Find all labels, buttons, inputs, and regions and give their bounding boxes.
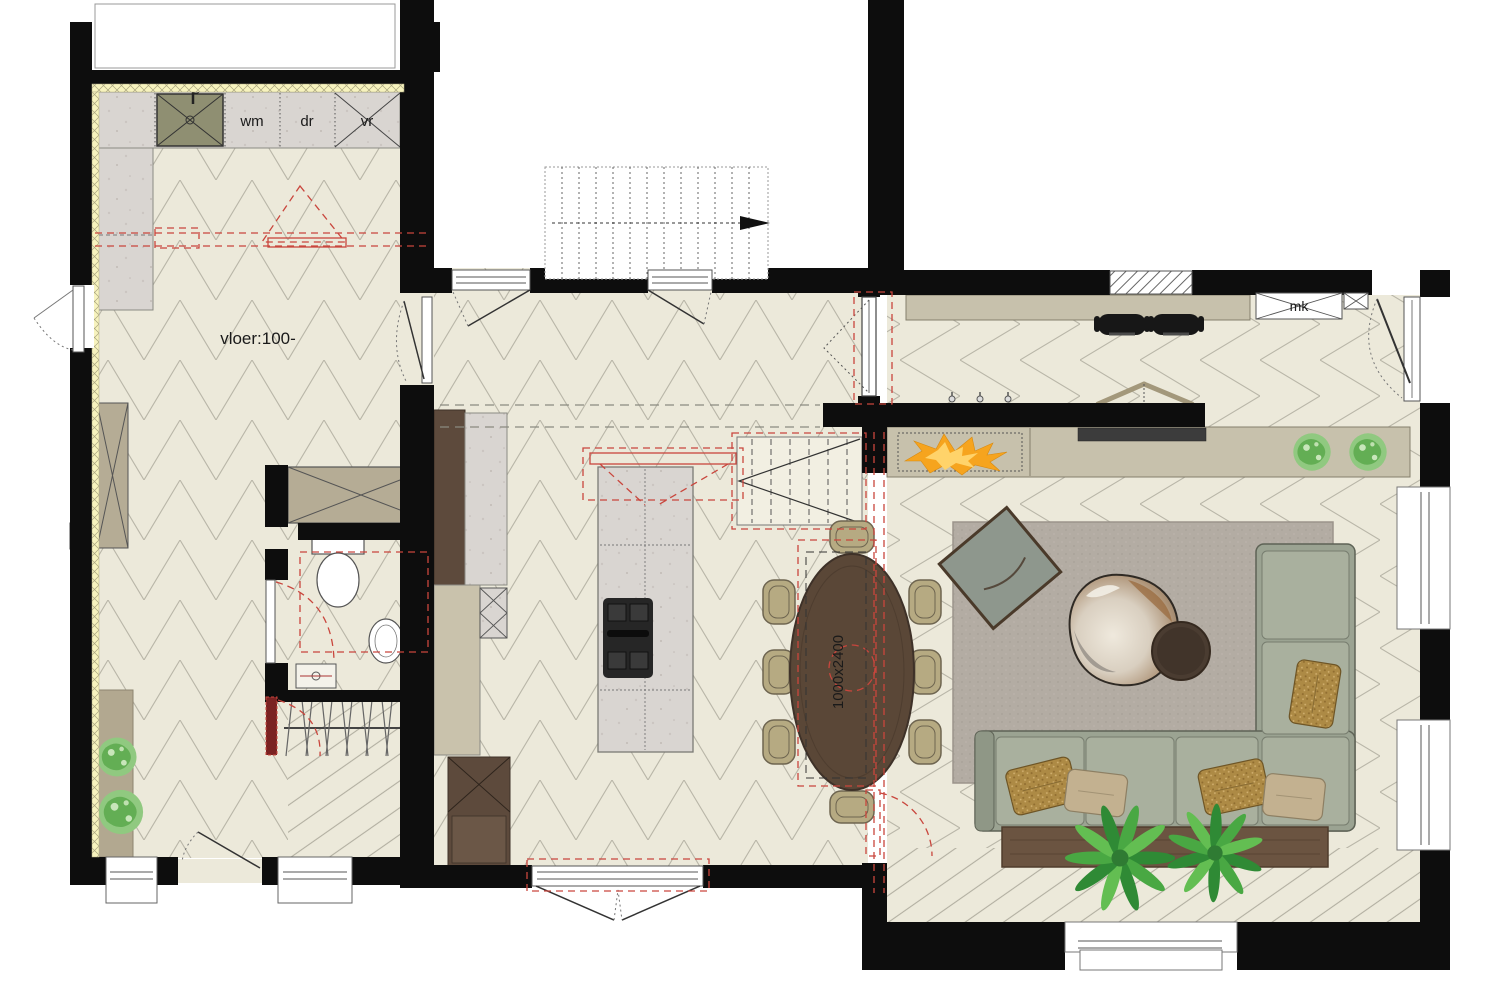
hall-window-2: [278, 857, 352, 903]
washbasin: [369, 619, 403, 663]
label-table-size: 1000x2400: [830, 635, 847, 709]
floor-plan: wm dr vr vloer:100- mk 1000x2400: [0, 0, 1500, 1000]
tv: [1078, 428, 1206, 441]
label-dryer: dr: [300, 113, 313, 130]
living-window-1: [1397, 487, 1450, 629]
roof-overhang-outline: [95, 4, 395, 68]
label-washing-machine: wm: [239, 113, 263, 130]
kitchen-base-cabinet: [434, 585, 480, 755]
kitchen-lower-cabinet: [448, 757, 510, 867]
wc-door: [266, 580, 275, 663]
cooktop: [603, 598, 653, 678]
wardrobe-door: [266, 697, 277, 755]
kitchen-sink: [480, 588, 507, 638]
basement-stair: [737, 437, 862, 525]
media-console: [887, 427, 1410, 477]
floor-plan-canvas: wm dr vr vloer:100- mk 1000x2400: [0, 0, 1500, 1000]
utility-sink: [157, 87, 223, 147]
utility-counter-left-leg: [92, 148, 153, 310]
french-doors: [532, 866, 703, 920]
dining-table: [790, 554, 914, 790]
living-window-2: [1397, 720, 1450, 850]
staircase: [545, 167, 770, 279]
label-floor-note: vloer:100-: [220, 329, 296, 348]
label-freezer: vr: [361, 113, 374, 130]
label-meter-cupboard: mk: [1290, 298, 1310, 314]
door-utility-kitchen: [396, 293, 434, 385]
kitchen-tall-cabinet: [434, 410, 465, 585]
living-window-bottom: [1065, 922, 1237, 970]
kitchen-island: [598, 467, 693, 752]
kitchen-counter: [465, 413, 507, 585]
wall-niche-hatched: [1110, 271, 1192, 294]
desk: [906, 295, 1250, 320]
floor-drain-unit: [296, 664, 336, 688]
entry-door-left: [34, 285, 94, 352]
side-table: [1152, 622, 1210, 680]
hall-window-1: [106, 857, 157, 903]
